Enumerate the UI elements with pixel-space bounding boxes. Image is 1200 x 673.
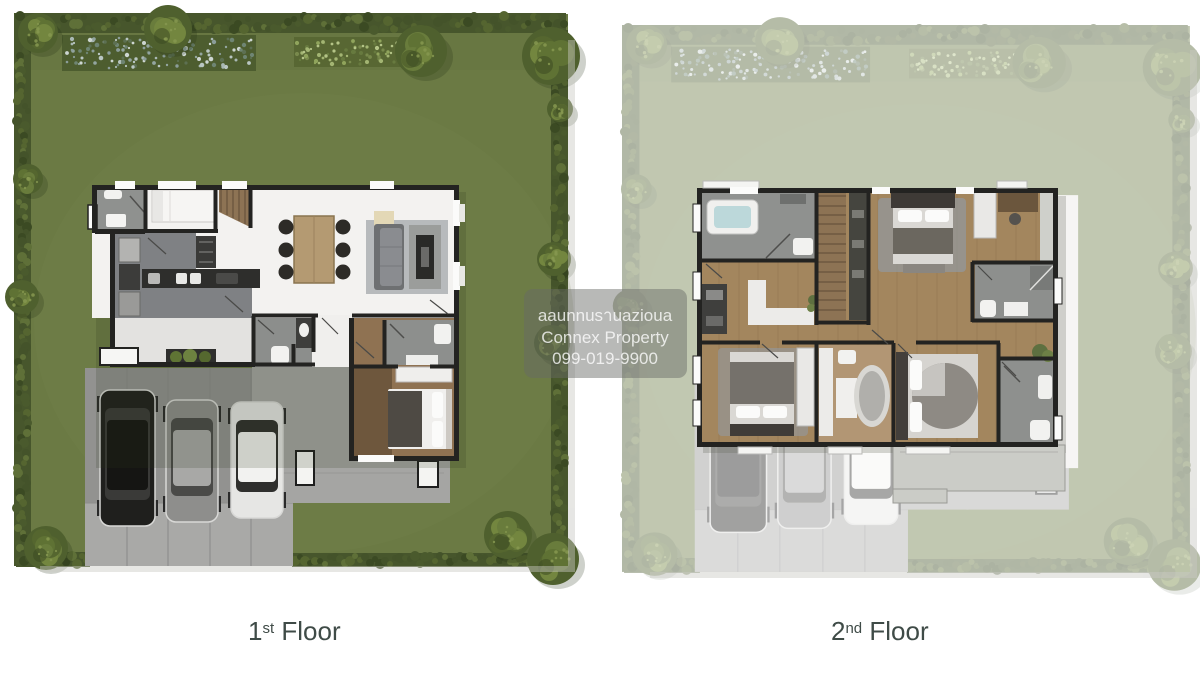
svg-text:aaunnusาuazioua: aaunnusาuazioua <box>538 306 673 325</box>
svg-text:099-019-9900: 099-019-9900 <box>552 349 658 368</box>
svg-text:1st Floor: 1st Floor <box>248 616 341 646</box>
svg-text:2nd Floor: 2nd Floor <box>831 616 929 646</box>
svg-text:Connex Property: Connex Property <box>541 328 669 347</box>
